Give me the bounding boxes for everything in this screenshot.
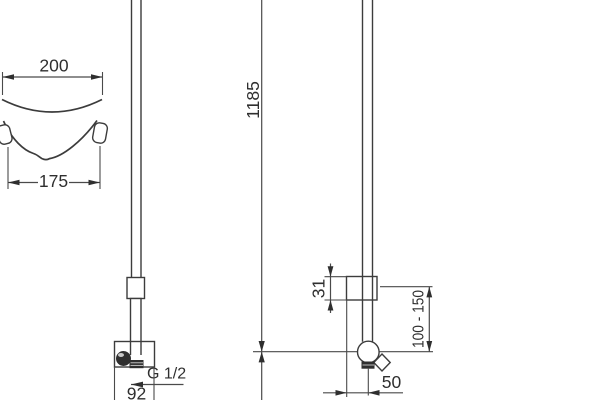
dim-1185-group: 1185 [243,0,433,400]
dim-100-150-label: 100 - 150 [411,290,428,348]
thread-label: G 1/2 [147,366,186,383]
dish-left-clip [0,124,13,146]
dim-31-label: 31 [309,279,329,298]
dim-50-label: 50 [382,372,402,392]
ball-joint [116,351,131,366]
soap-dish-group: 200 175 [0,56,108,192]
drawing-canvas: 200 175 G 1/2 92 [0,0,600,400]
dim-175-label: 175 [39,171,68,191]
arrowhead-up-icon [328,300,334,311]
arrowhead-down-icon [259,341,265,352]
arrowhead-up-icon [259,352,265,363]
dish-right-clip [92,122,108,144]
handshower-handle [127,278,145,299]
rail-assembly-group: 31 100 - 150 50 [309,0,433,397]
handshower-assembly-group: G 1/2 92 [115,0,187,400]
arrowhead-left-icon [368,390,379,396]
hose-nut-left [130,360,144,368]
arrowhead-right-icon [336,390,347,396]
dish-rim-curve [2,100,102,113]
arrowhead-right-icon [91,74,103,80]
dish-bowl-curve [4,121,98,160]
technical-drawing: 200 175 G 1/2 92 [0,0,600,400]
arrowhead-left-icon [3,74,15,80]
ball-joint-highlight [118,353,124,357]
arrowhead-right-icon [89,180,101,186]
dim-92-label: 92 [127,384,146,400]
dim-200-label: 200 [39,56,68,76]
arrowhead-down-icon [328,266,334,277]
arrowhead-left-icon [8,180,20,186]
handshower-tube [131,299,142,343]
dim-1185-label: 1185 [243,81,263,119]
